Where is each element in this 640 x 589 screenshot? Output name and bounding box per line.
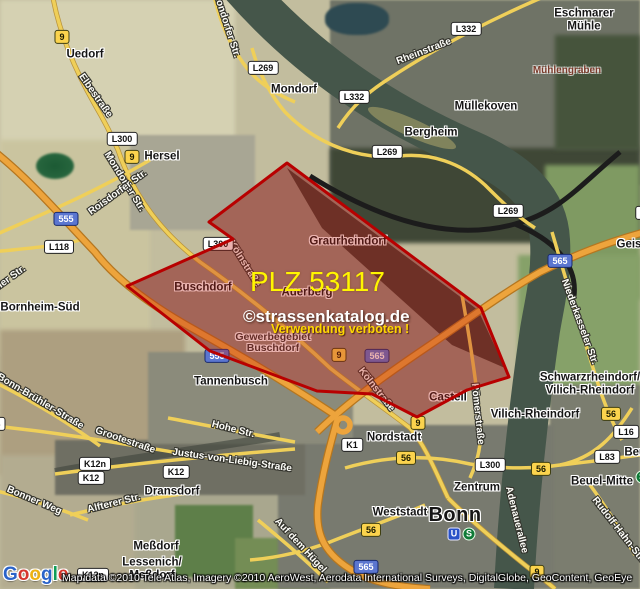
google-logo-letter: g [41,564,53,585]
plz-overlay-layer [0,0,640,589]
google-logo-letter: o [29,564,41,585]
copyright-attribution: Map data ©2010 Tele Atlas, Imagery ©2010… [62,572,632,584]
plz-53117-boundary [127,163,509,417]
google-logo-letter: G [3,564,18,585]
map-canvas[interactable]: UedorfMondorfHerselEschmarerMühleMühleng… [0,0,640,589]
google-logo-letter: o [18,564,30,585]
google-logo[interactable]: Google [3,564,68,586]
